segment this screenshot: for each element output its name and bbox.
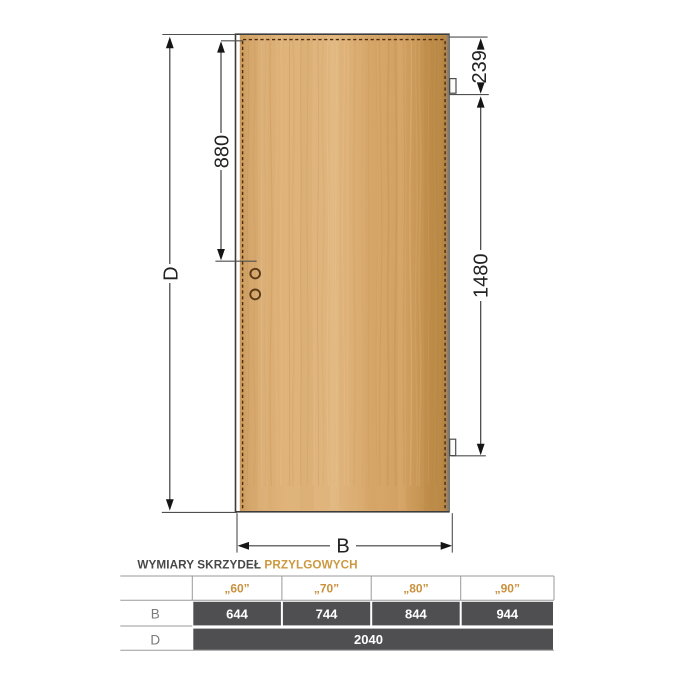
- svg-text:B: B: [151, 606, 160, 621]
- svg-text:„90”: „90”: [495, 582, 520, 596]
- svg-text:880: 880: [212, 135, 234, 168]
- svg-text:644: 644: [226, 606, 248, 621]
- svg-text:„80”: „80”: [403, 582, 428, 596]
- svg-text:D: D: [150, 632, 160, 647]
- svg-text:„60”: „60”: [224, 582, 249, 596]
- svg-text:WYMIARY SKRZYDEŁ PRZYLGOWYCH: WYMIARY SKRZYDEŁ PRZYLGOWYCH: [137, 559, 357, 572]
- svg-text:744: 744: [316, 606, 338, 621]
- svg-text:„70”: „70”: [314, 582, 339, 596]
- svg-text:944: 944: [496, 606, 518, 621]
- svg-text:844: 844: [405, 606, 427, 621]
- svg-text:D: D: [160, 266, 182, 280]
- svg-text:2040: 2040: [354, 632, 383, 647]
- svg-text:239: 239: [469, 50, 491, 83]
- svg-text:1480: 1480: [470, 254, 492, 299]
- svg-text:B: B: [336, 536, 349, 558]
